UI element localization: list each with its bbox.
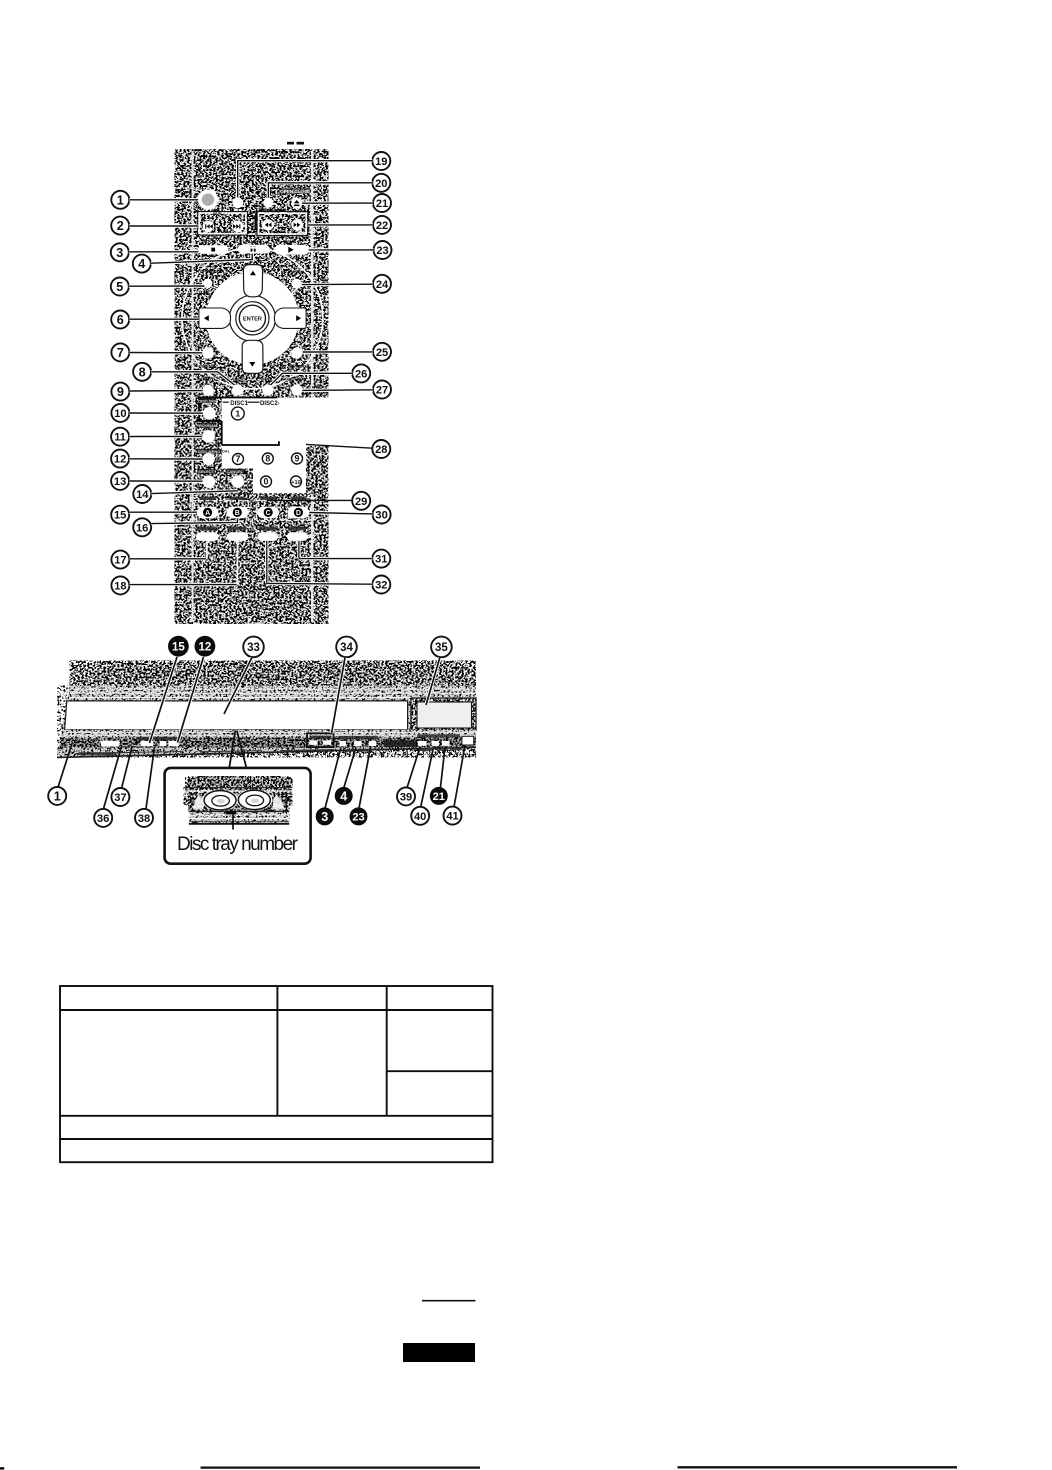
svg-text:15: 15 (172, 641, 185, 653)
svg-text:12: 12 (199, 641, 212, 653)
svg-text:1: 1 (54, 789, 61, 803)
svg-text:14: 14 (136, 489, 149, 501)
svg-text:6: 6 (117, 313, 124, 327)
svg-text:31: 31 (375, 554, 387, 566)
svg-text:36: 36 (97, 813, 109, 825)
svg-text:40: 40 (414, 811, 426, 823)
svg-text:19: 19 (375, 156, 387, 168)
svg-text:PAUSE: PAUSE (245, 239, 260, 244)
svg-text:13: 13 (114, 476, 126, 488)
svg-text:DISC1: DISC1 (230, 401, 248, 407)
svg-text:39: 39 (400, 791, 412, 803)
svg-text:3: 3 (321, 810, 328, 824)
svg-text:B: B (235, 510, 240, 517)
svg-text:34: 34 (340, 642, 353, 654)
svg-text:CONDITION: CONDITION (282, 377, 307, 382)
svg-text:30: 30 (375, 509, 387, 521)
svg-text:MENU: MENU (291, 269, 304, 274)
svg-text:29: 29 (355, 496, 367, 508)
svg-text:8: 8 (265, 454, 270, 464)
svg-text:DAL: DAL (222, 450, 230, 454)
svg-text:15: 15 (114, 510, 126, 522)
svg-text:20: 20 (375, 178, 387, 190)
svg-text:21: 21 (433, 791, 445, 803)
svg-text:1: 1 (235, 409, 240, 419)
svg-text:11: 11 (114, 432, 126, 444)
svg-text:21: 21 (376, 198, 388, 210)
svg-text:A: A (205, 510, 210, 517)
svg-text:2: 2 (117, 219, 124, 233)
svg-text:18: 18 (114, 580, 126, 592)
svg-text:35: 35 (435, 642, 448, 654)
svg-text:D: D (296, 510, 301, 517)
svg-text:TOP MENU: TOP MENU (197, 269, 220, 274)
svg-text:SKIP: SKIP (213, 212, 222, 216)
svg-text:SUBTITLE: SUBTITLE (198, 377, 220, 382)
svg-text:C: C (266, 510, 271, 517)
svg-text:9: 9 (295, 454, 300, 464)
svg-text:PROGRAM: PROGRAM (196, 423, 218, 428)
svg-text:38: 38 (138, 813, 150, 825)
svg-text:24: 24 (376, 279, 389, 291)
svg-text:Disc tray number: Disc tray number (177, 834, 299, 855)
svg-text:RETURN: RETURN (289, 364, 307, 369)
svg-text:OPEN.CLOSE: OPEN.CLOSE (280, 189, 310, 194)
svg-text:5: 5 (116, 280, 123, 294)
svg-text:DISPLAY: DISPLAY (198, 364, 217, 369)
svg-text:DISC SKIP: DISC SKIP (198, 399, 218, 404)
svg-text:25: 25 (376, 347, 388, 359)
svg-text:9: 9 (117, 385, 124, 399)
svg-text:8: 8 (139, 365, 146, 379)
svg-text:12: 12 (114, 454, 126, 466)
svg-text:PLAY: PLAY (283, 239, 295, 244)
svg-text:23: 23 (352, 811, 364, 823)
svg-text:ENTER: ENTER (243, 317, 262, 323)
svg-text:28: 28 (375, 444, 387, 456)
svg-text:0: 0 (264, 477, 269, 487)
svg-text:AUDIO: AUDIO (231, 377, 246, 382)
svg-text:41: 41 (446, 811, 458, 823)
svg-text:1: 1 (117, 193, 124, 207)
svg-text:16: 16 (136, 522, 148, 534)
svg-text:7: 7 (236, 454, 241, 464)
svg-text:27: 27 (376, 384, 388, 396)
svg-text:3: 3 (116, 246, 123, 260)
svg-text:23: 23 (376, 245, 388, 257)
svg-text:10: 10 (114, 408, 126, 420)
svg-text:STOP: STOP (204, 239, 216, 244)
svg-text:7: 7 (117, 346, 124, 360)
svg-text:SELECT: SELECT (198, 469, 214, 474)
svg-text:33: 33 (247, 642, 260, 654)
svg-text:37: 37 (114, 792, 126, 804)
svg-text:26: 26 (355, 368, 367, 380)
svg-text:4: 4 (340, 789, 347, 803)
svg-text:32: 32 (375, 579, 387, 591)
svg-text:17: 17 (114, 555, 126, 567)
svg-text:4: 4 (138, 257, 145, 271)
svg-text:+10: +10 (291, 480, 301, 486)
svg-text:22: 22 (376, 220, 388, 232)
svg-text:DISC2-: DISC2- (260, 401, 280, 407)
svg-text:CANCEL: CANCEL (226, 469, 243, 474)
